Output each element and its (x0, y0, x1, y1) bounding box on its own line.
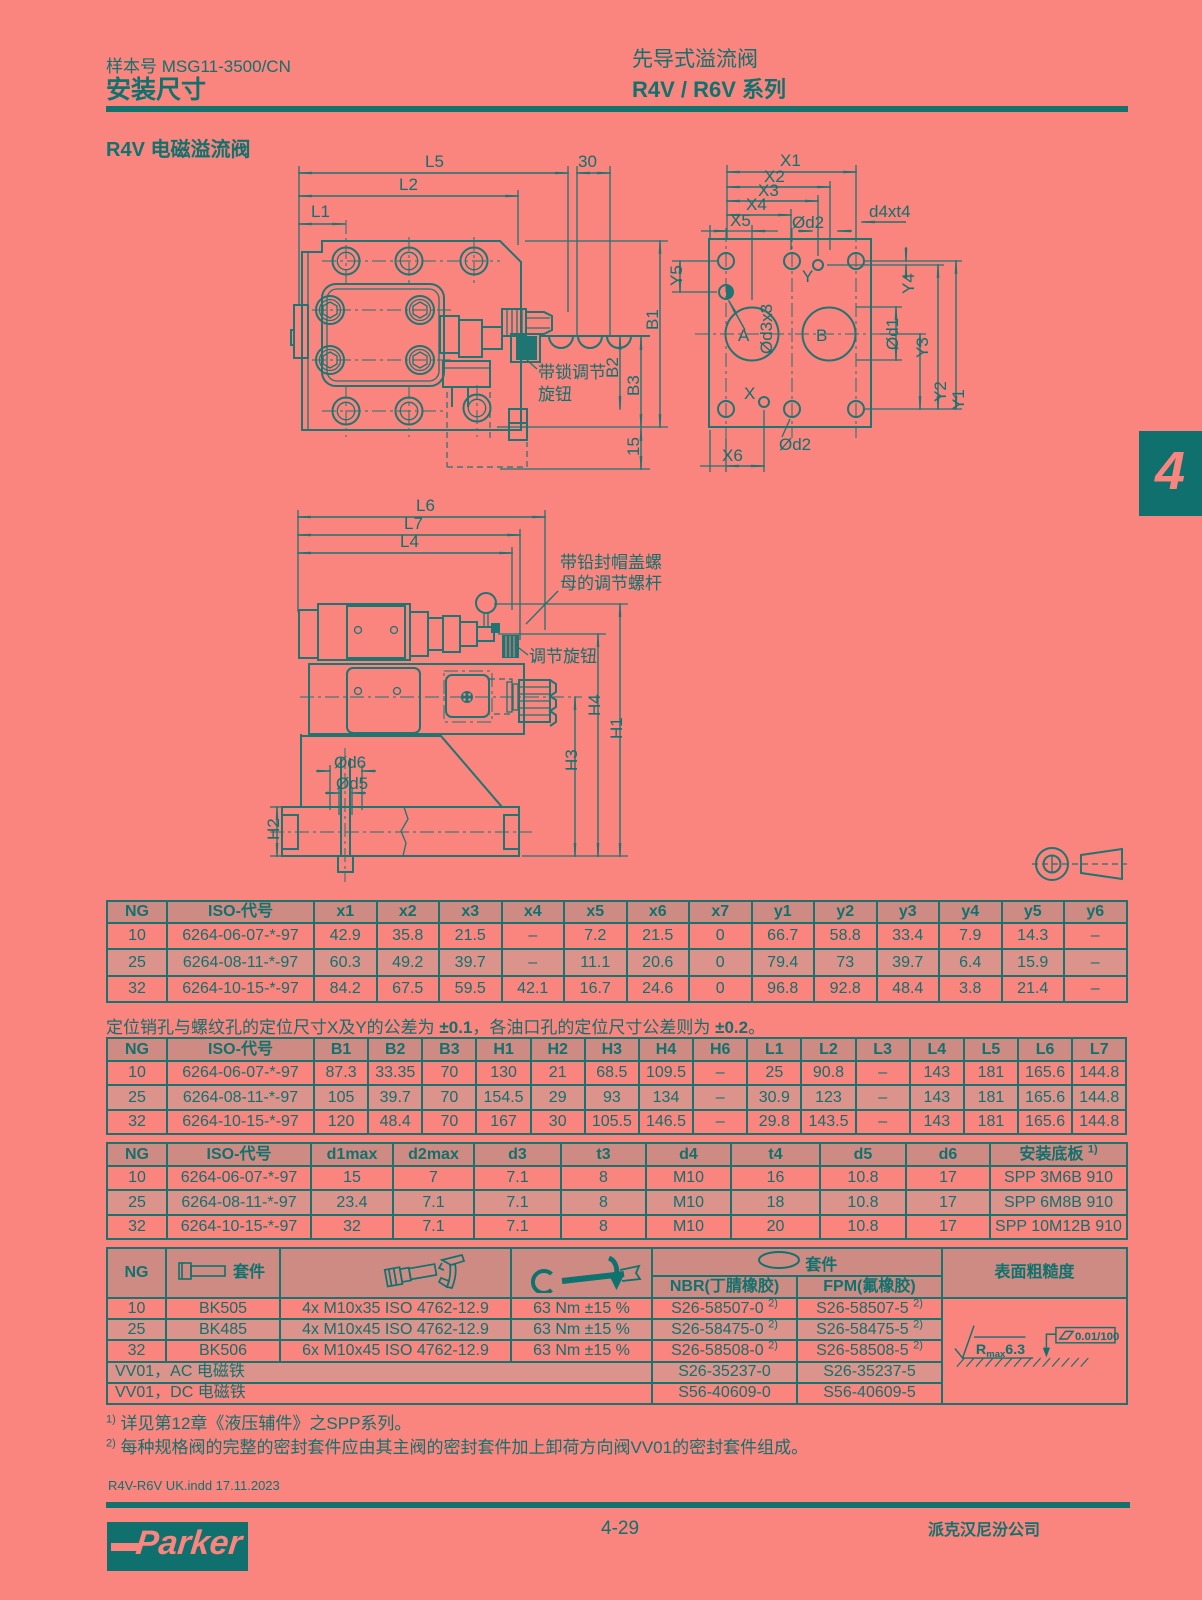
svg-text:Y4: Y4 (899, 273, 918, 294)
svg-text:B1: B1 (643, 309, 662, 330)
svg-text:H1: H1 (607, 717, 626, 739)
svg-text:B3: B3 (624, 375, 643, 396)
svg-text:Rmax6.3: Rmax6.3 (976, 1342, 1025, 1360)
svg-text:调节旋钮: 调节旋钮 (529, 647, 597, 666)
svg-text:L5: L5 (425, 152, 444, 171)
svg-text:15: 15 (624, 437, 643, 456)
svg-text:L2: L2 (399, 175, 418, 194)
svg-text:L7: L7 (404, 514, 423, 533)
svg-text:Ød2: Ød2 (792, 213, 824, 232)
svg-text:X5: X5 (730, 211, 751, 230)
svg-text:X: X (744, 384, 755, 403)
svg-text:带锁调节: 带锁调节 (538, 363, 606, 382)
svg-text:B2: B2 (603, 357, 622, 378)
svg-text:X6: X6 (722, 446, 743, 465)
svg-text:Y3: Y3 (913, 337, 932, 358)
svg-text:母的调节螺杆: 母的调节螺杆 (560, 574, 662, 593)
svg-text:套件: 套件 (232, 1262, 265, 1281)
svg-text:H2: H2 (264, 818, 283, 840)
svg-text:L4: L4 (400, 532, 419, 551)
svg-text:Ød2: Ød2 (779, 435, 811, 454)
svg-text:旋钮: 旋钮 (538, 385, 572, 404)
svg-text:Y1: Y1 (949, 389, 968, 410)
svg-text:B: B (816, 326, 827, 345)
svg-text:0.01/100: 0.01/100 (1075, 1331, 1119, 1343)
svg-text:Ød3x3: Ød3x3 (757, 304, 776, 354)
svg-text:d4xt4: d4xt4 (869, 202, 911, 221)
svg-text:Y5: Y5 (667, 265, 686, 286)
svg-text:H3: H3 (562, 749, 581, 771)
svg-text:L6: L6 (416, 496, 435, 515)
svg-text:Ød6: Ød6 (334, 753, 366, 772)
svg-text:带铅封帽盖螺: 带铅封帽盖螺 (560, 553, 662, 572)
svg-text:L1: L1 (311, 202, 330, 221)
svg-text:Y2: Y2 (931, 381, 950, 402)
svg-text:30: 30 (578, 152, 597, 171)
svg-text:Y: Y (802, 267, 813, 286)
svg-text:H4: H4 (585, 694, 604, 716)
